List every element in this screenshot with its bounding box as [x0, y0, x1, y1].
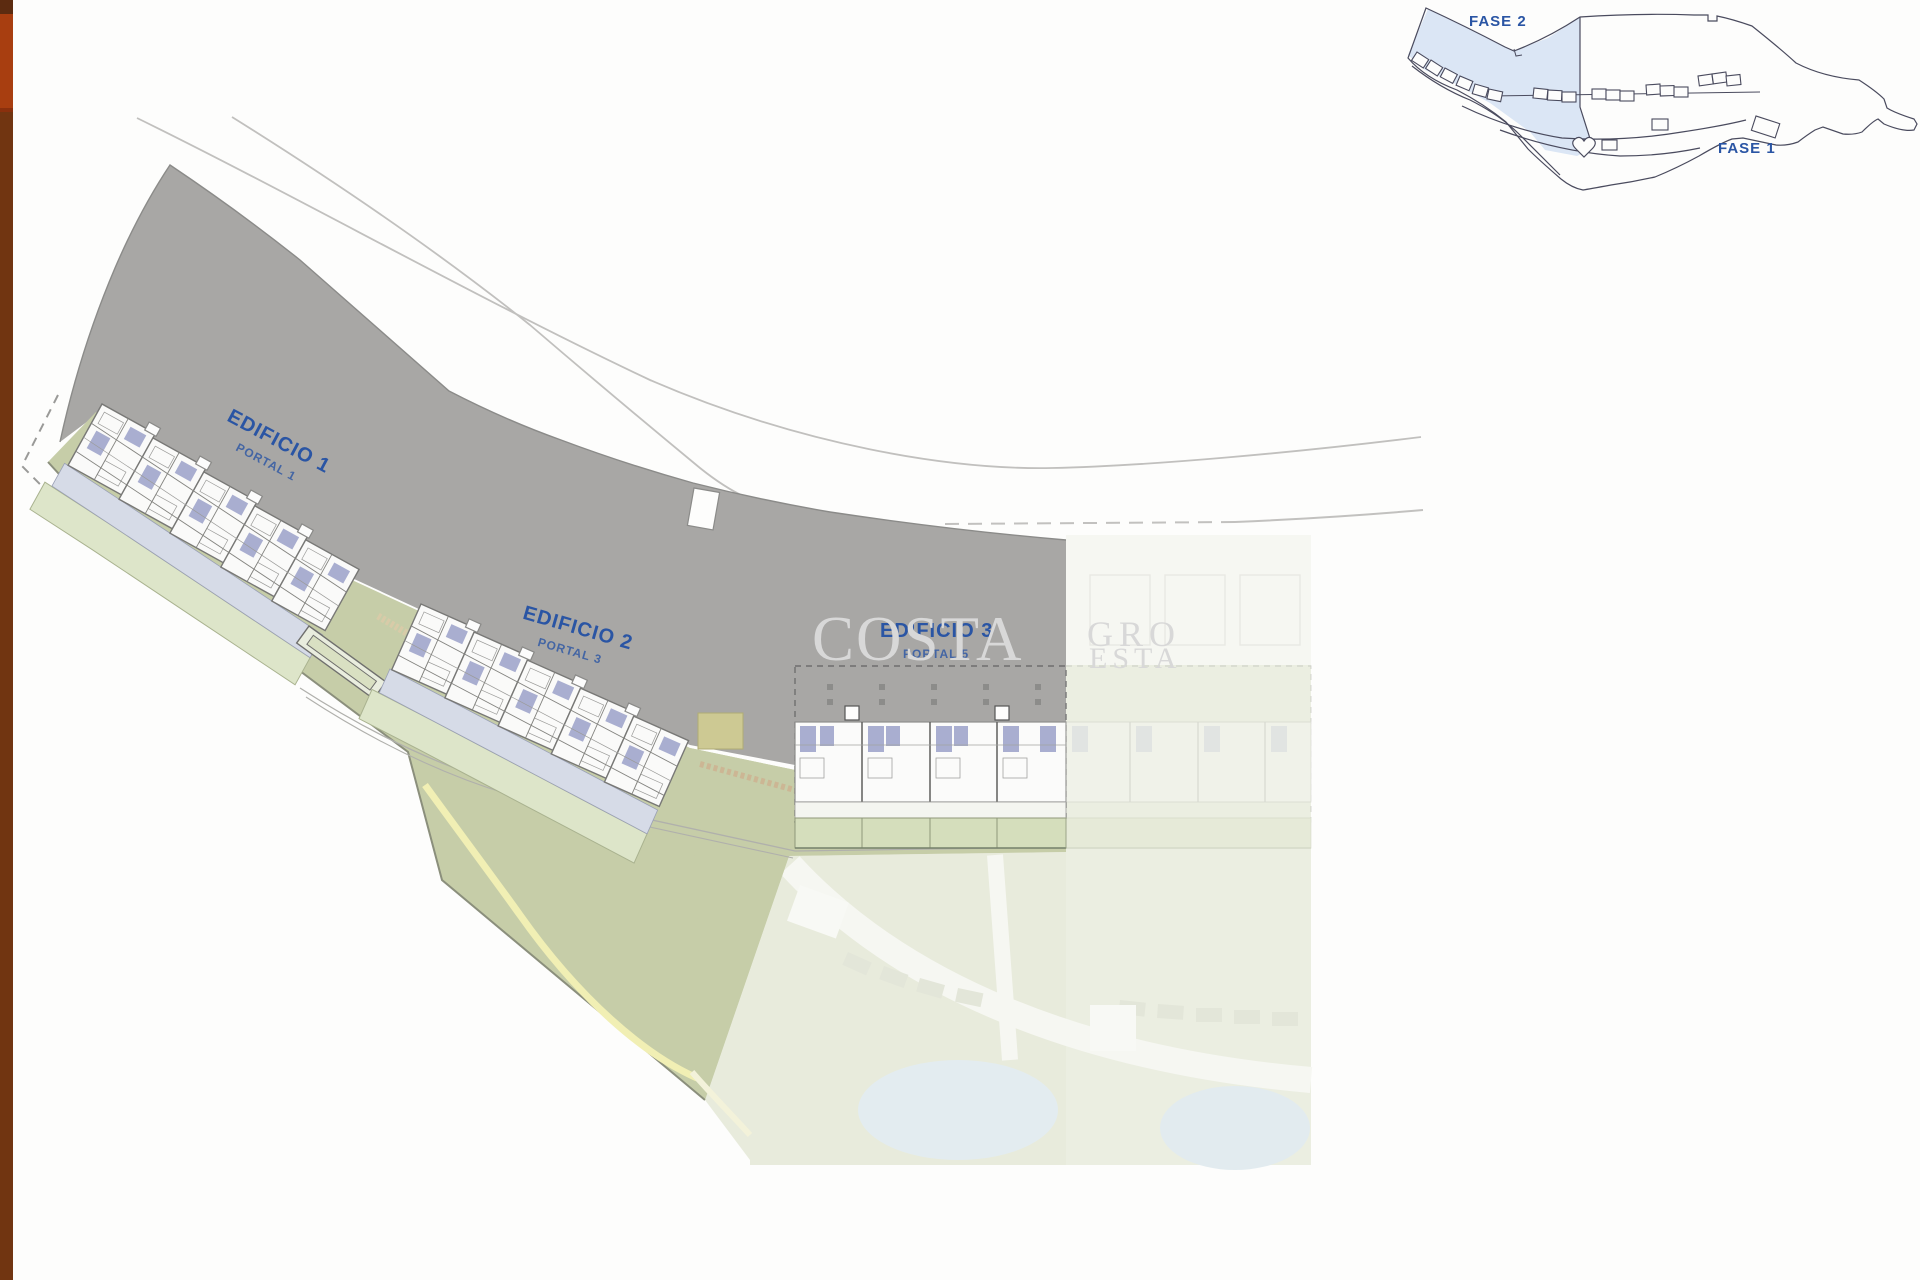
svg-text:FASE 1: FASE 1: [1718, 140, 1776, 157]
svg-text:COSTA: COSTA: [812, 604, 1024, 674]
svg-text:ESTA: ESTA: [1089, 642, 1182, 675]
svg-text:FASE 2: FASE 2: [1469, 13, 1527, 30]
